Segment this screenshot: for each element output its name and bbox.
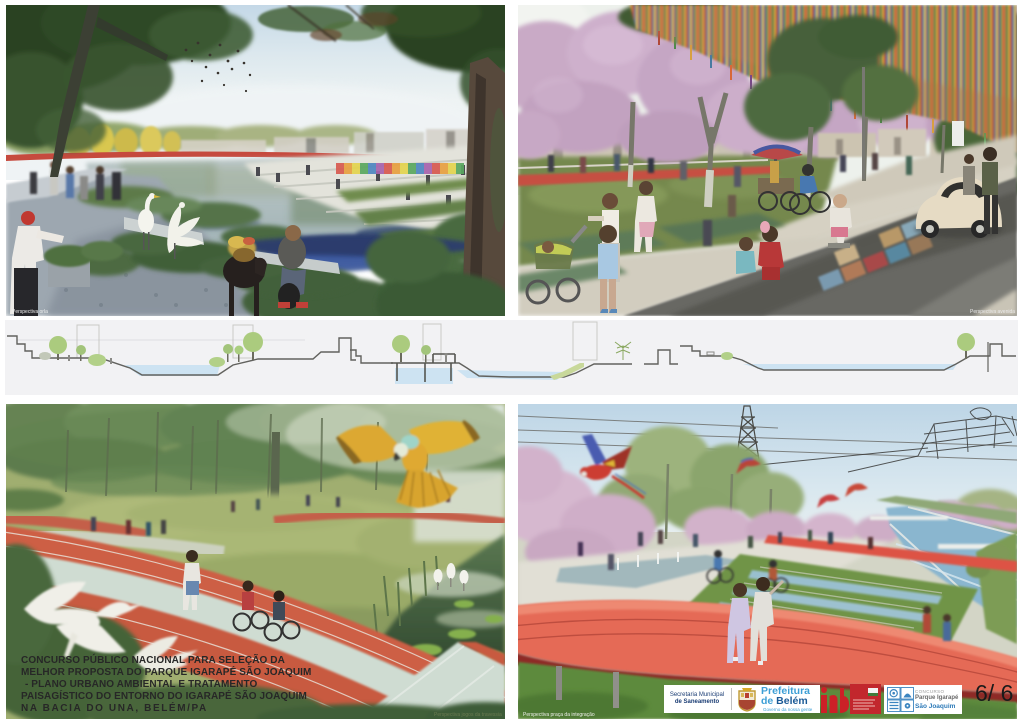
svg-text:Perspectiva orla: Perspectiva orla — [12, 309, 48, 315]
svg-text:Perspectiva jogos da travessia: Perspectiva jogos da travessia — [434, 712, 502, 718]
svg-text:Perspectiva avenida: Perspectiva avenida — [970, 309, 1015, 315]
svg-text:Perspectiva praça da integraçã: Perspectiva praça da integração — [523, 712, 595, 718]
